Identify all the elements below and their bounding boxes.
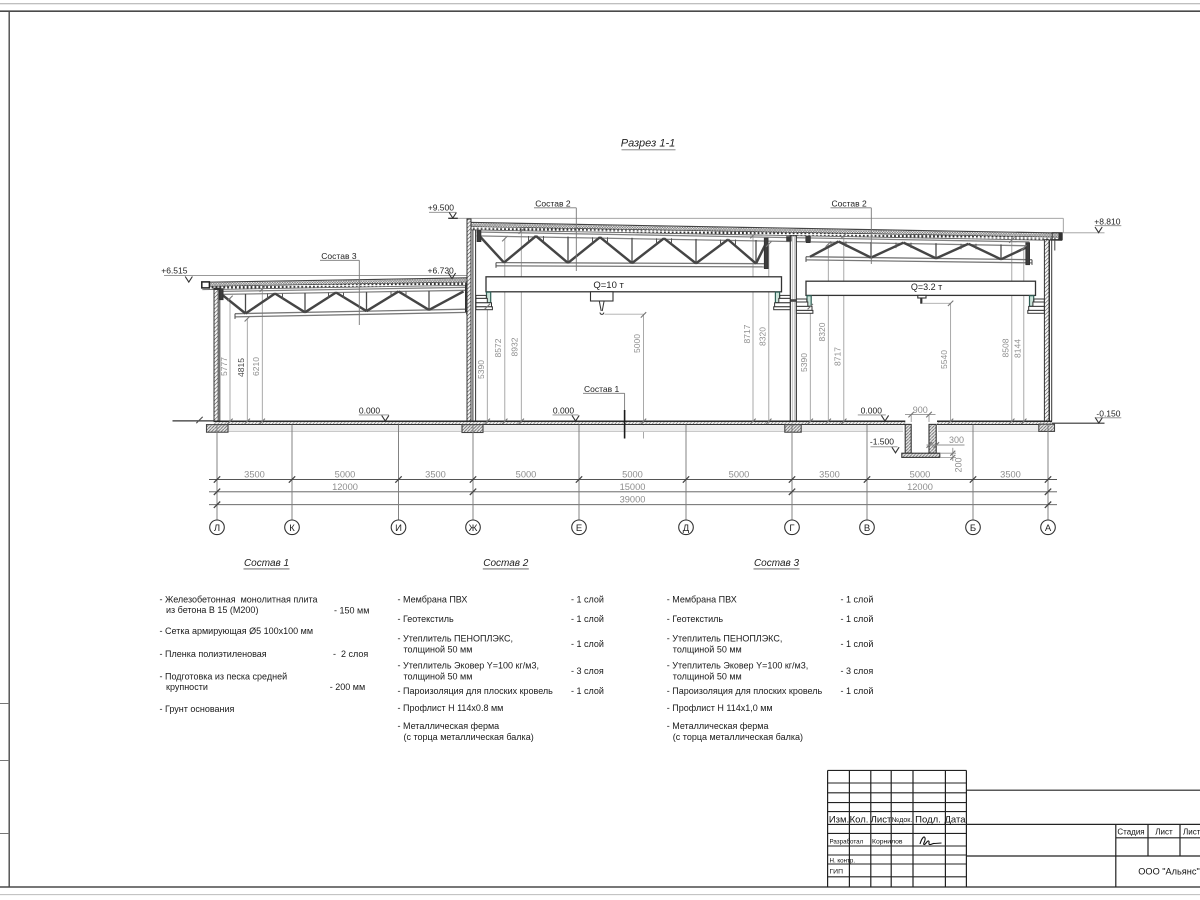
svg-text:Н. контр.: Н. контр.	[830, 858, 856, 865]
svg-text:0.000: 0.000	[861, 405, 883, 415]
svg-text:5000: 5000	[622, 470, 643, 480]
svg-text:Состав 2: Состав 2	[535, 198, 571, 208]
svg-text:-1.500: -1.500	[870, 437, 894, 447]
svg-text:- Профлист Н 114х1,0 мм: - Профлист Н 114х1,0 мм	[667, 703, 773, 713]
svg-text:Подл.: Подл.	[915, 815, 941, 826]
svg-text:5000: 5000	[516, 470, 537, 480]
svg-text:- 2 слоя: - 2 слоя	[333, 649, 368, 659]
svg-text:крупности: крупности	[166, 682, 208, 692]
svg-text:15000: 15000	[620, 482, 646, 492]
svg-text:4815: 4815	[236, 358, 246, 377]
svg-text:3500: 3500	[425, 470, 446, 480]
svg-text:8717: 8717	[742, 324, 752, 343]
svg-text:Изм.: Изм.	[829, 815, 849, 826]
svg-text:- 1 слой: - 1 слой	[841, 614, 874, 624]
svg-text:12000: 12000	[332, 482, 358, 492]
svg-text:- Геотекстиль: - Геотекстиль	[398, 614, 455, 624]
svg-text:ГИП: ГИП	[830, 868, 844, 875]
svg-text:Дата: Дата	[944, 815, 966, 826]
svg-text:- Сетка армирующая Ø5 100х100: - Сетка армирующая Ø5 100х100 мм	[160, 626, 314, 636]
svg-text:+8.810: +8.810	[1094, 217, 1121, 227]
svg-text:- Металлическая ферма: - Металлическая ферма	[667, 721, 769, 731]
svg-text:3500: 3500	[1000, 470, 1021, 480]
svg-text:Е: Е	[576, 523, 582, 534]
svg-text:8717: 8717	[833, 347, 843, 366]
svg-text:А: А	[1045, 523, 1052, 534]
svg-text:5000: 5000	[910, 470, 931, 480]
svg-text:3500: 3500	[244, 470, 265, 480]
svg-text:Г: Г	[789, 523, 794, 534]
svg-text:- Утеплитель Эковер Y=100 кг/м: - Утеплитель Эковер Y=100 кг/м3,	[667, 660, 808, 670]
svg-text:- Пароизоляция для плоских кро: - Пароизоляция для плоских кровель	[398, 686, 554, 696]
svg-text:- 3 слоя: - 3 слоя	[841, 666, 874, 676]
svg-text:3500: 3500	[819, 470, 840, 480]
svg-text:- Мембрана ПВХ: - Мембрана ПВХ	[398, 595, 468, 605]
svg-text:ООО "Альянс": ООО "Альянс"	[1138, 867, 1199, 877]
svg-text:300: 300	[949, 435, 964, 445]
svg-text:+9.500: +9.500	[428, 203, 455, 213]
svg-text:Разработал: Разработал	[830, 839, 864, 846]
svg-text:(с торца металлическая балка): (с торца металлическая балка)	[673, 732, 803, 742]
svg-text:Стадия: Стадия	[1117, 827, 1144, 836]
svg-text:- Подготовка из песка средней: - Подготовка из песка средней	[160, 671, 288, 681]
svg-text:Лист: Лист	[871, 815, 892, 826]
svg-text:0.000: 0.000	[359, 405, 381, 415]
svg-text:- 1 слой: - 1 слой	[571, 686, 604, 696]
svg-text:5000: 5000	[335, 470, 356, 480]
svg-text:8932: 8932	[510, 337, 520, 356]
svg-text:- 3 слоя: - 3 слоя	[571, 666, 604, 676]
svg-text:- 150 мм: - 150 мм	[334, 606, 369, 616]
svg-text:8508: 8508	[1001, 338, 1011, 357]
svg-text:39000: 39000	[620, 495, 646, 505]
svg-text:Состав 3: Состав 3	[321, 251, 357, 261]
svg-text:Состав 2: Состав 2	[483, 558, 529, 569]
svg-text:Состав 3: Состав 3	[754, 558, 800, 569]
svg-text:Лист: Лист	[1155, 827, 1173, 836]
svg-text:- Железобетонная монолитная п: - Железобетонная монолитная плита	[160, 595, 318, 605]
svg-text:Д: Д	[683, 523, 690, 534]
svg-text:0.000: 0.000	[553, 405, 575, 415]
svg-text:- 1 слой: - 1 слой	[571, 595, 604, 605]
svg-text:- Утеплитель Эковер Y=100 кг/м: - Утеплитель Эковер Y=100 кг/м3,	[398, 660, 539, 670]
svg-text:- Грунт основания: - Грунт основания	[160, 704, 235, 714]
svg-text:- Профлист Н 114х0.8 мм: - Профлист Н 114х0.8 мм	[398, 703, 504, 713]
svg-text:К: К	[289, 523, 295, 534]
svg-text:Кол.: Кол.	[850, 815, 869, 826]
svg-text:№док.: №док.	[892, 817, 913, 824]
svg-text:Разрез 1-1: Разрез 1-1	[621, 138, 676, 150]
svg-text:5540: 5540	[939, 350, 949, 369]
svg-text:+6.730: +6.730	[428, 265, 455, 275]
svg-text:- Геотекстиль: - Геотекстиль	[667, 614, 724, 624]
svg-text:- 1 слой: - 1 слой	[571, 639, 604, 649]
svg-text:толщиной 50 мм: толщиной 50 мм	[673, 671, 742, 681]
svg-text:Листов: Листов	[1183, 827, 1200, 836]
svg-text:- Пароизоляция для плоских кро: - Пароизоляция для плоских кровель	[667, 686, 823, 696]
svg-text:(с торца металлическая балка): (с торца металлическая балка)	[404, 732, 534, 742]
svg-text:-0.150: -0.150	[1096, 409, 1120, 419]
svg-text:Ж: Ж	[469, 523, 478, 534]
svg-text:900: 900	[913, 405, 928, 415]
svg-text:5000: 5000	[632, 334, 642, 353]
svg-text:Состав 2: Состав 2	[832, 198, 868, 208]
svg-text:толщиной 50 мм: толщиной 50 мм	[404, 644, 473, 654]
svg-text:Q=3.2 т: Q=3.2 т	[911, 282, 942, 292]
svg-text:Состав 1: Состав 1	[244, 558, 289, 569]
svg-text:5390: 5390	[476, 360, 486, 379]
svg-text:толщиной 50 мм: толщиной 50 мм	[673, 644, 742, 654]
svg-text:- 1 слой: - 1 слой	[571, 614, 604, 624]
svg-text:Л: Л	[214, 523, 220, 534]
svg-text:В: В	[864, 523, 870, 534]
svg-text:- 200 мм: - 200 мм	[330, 682, 365, 692]
svg-text:- 1 слой: - 1 слой	[841, 686, 874, 696]
svg-text:8572: 8572	[493, 338, 503, 357]
svg-text:200: 200	[954, 457, 964, 472]
svg-text:6210: 6210	[251, 357, 261, 376]
svg-text:- Мембрана ПВХ: - Мембрана ПВХ	[667, 595, 737, 605]
svg-text:Б: Б	[970, 523, 976, 534]
svg-text:5390: 5390	[799, 353, 809, 372]
svg-text:толщиной 50 мм: толщиной 50 мм	[404, 671, 473, 681]
svg-text:5777: 5777	[219, 357, 229, 376]
svg-text:8144: 8144	[1013, 339, 1023, 358]
svg-text:8320: 8320	[817, 322, 827, 341]
svg-text:- Пленка полиэтиленовая: - Пленка полиэтиленовая	[160, 649, 267, 659]
svg-text:из бетона В 15 (М200): из бетона В 15 (М200)	[166, 605, 258, 615]
svg-text:- 1 слой: - 1 слой	[841, 639, 874, 649]
svg-text:И: И	[395, 523, 402, 534]
svg-text:- 1 слой: - 1 слой	[841, 595, 874, 605]
svg-text:- Утеплитель ПЕНОПЛЭКС,: - Утеплитель ПЕНОПЛЭКС,	[398, 634, 514, 644]
svg-text:Состав 1: Состав 1	[584, 384, 620, 394]
svg-text:12000: 12000	[907, 482, 933, 492]
svg-text:5000: 5000	[729, 470, 750, 480]
svg-text:Корнилов: Корнилов	[872, 839, 903, 846]
svg-text:Q=10 т: Q=10 т	[593, 280, 624, 291]
svg-text:8320: 8320	[758, 327, 768, 346]
svg-text:- Утеплитель ПЕНОПЛЭКС,: - Утеплитель ПЕНОПЛЭКС,	[667, 634, 783, 644]
svg-text:+6.515: +6.515	[161, 265, 188, 275]
svg-text:- Металлическая ферма: - Металлическая ферма	[398, 721, 500, 731]
